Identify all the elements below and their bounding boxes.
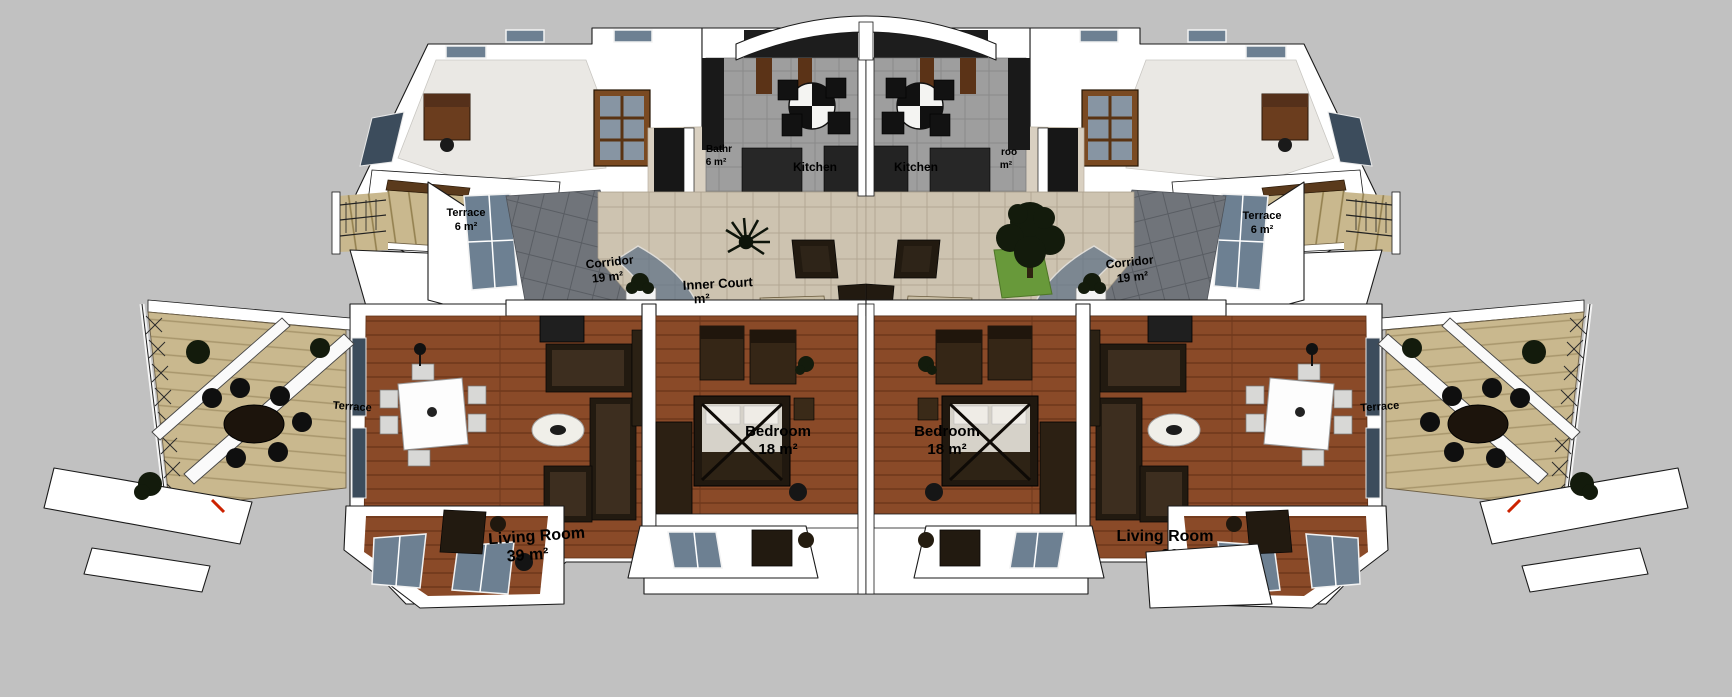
wicker-chair [752,530,792,566]
center-post [859,22,873,60]
floor-lamp [414,343,426,355]
label-terrace-upper-right-area: 6 m² [1251,224,1274,236]
label-living-left-area: 39 m² [506,546,549,566]
label-bathroom-right: roo [1001,147,1017,158]
chair [782,114,802,136]
floorplan-3d-render: Terrace 6 m² Terrace 6 m² Bathr 6 m² roo… [0,0,1732,697]
window [446,46,486,58]
fireplace [540,316,584,342]
floorplan-svg: Terrace 6 m² Terrace 6 m² Bathr 6 m² roo… [0,0,1732,697]
occluding-bay-wall [1146,544,1272,608]
chair [826,78,846,98]
basket [798,532,814,548]
label-bedroom-left-area: 18 m² [758,441,797,458]
stool [789,483,807,501]
kitchen [702,58,862,192]
label-inner-court-area: m² [693,291,710,307]
wardrobe [656,422,692,514]
chair [778,80,798,100]
chair [440,138,454,152]
label-kitchen-right: Kitchen [894,160,938,174]
chair [828,112,850,134]
label-bathroom-left-area: 6 m² [706,157,727,168]
kitchen-cabinets [702,58,724,150]
label-terrace-upper-left: Terrace [447,207,486,219]
label-bedroom-right-area: 18 m² [927,441,966,458]
window [614,30,652,42]
glazed-door [594,90,650,166]
label-kitchen-left: Kitchen [793,160,837,174]
window [506,30,544,42]
label-bathroom-right-area: m² [1000,160,1013,171]
label-terrace-upper-right: Terrace [1243,210,1282,222]
dark-doorway [654,128,684,194]
bedroom [656,316,858,520]
nightstand [794,398,814,420]
label-terrace-upper-left-area: 6 m² [455,221,478,233]
door-frame [756,58,772,94]
label-bedroom-right: Bedroom [914,423,980,440]
label-bedroom-left: Bedroom [745,423,811,440]
wicker-chair [440,510,486,554]
window [352,428,366,498]
label-bathroom-left: Bathr [706,144,732,155]
label-living-right: Living Room [1117,528,1214,545]
